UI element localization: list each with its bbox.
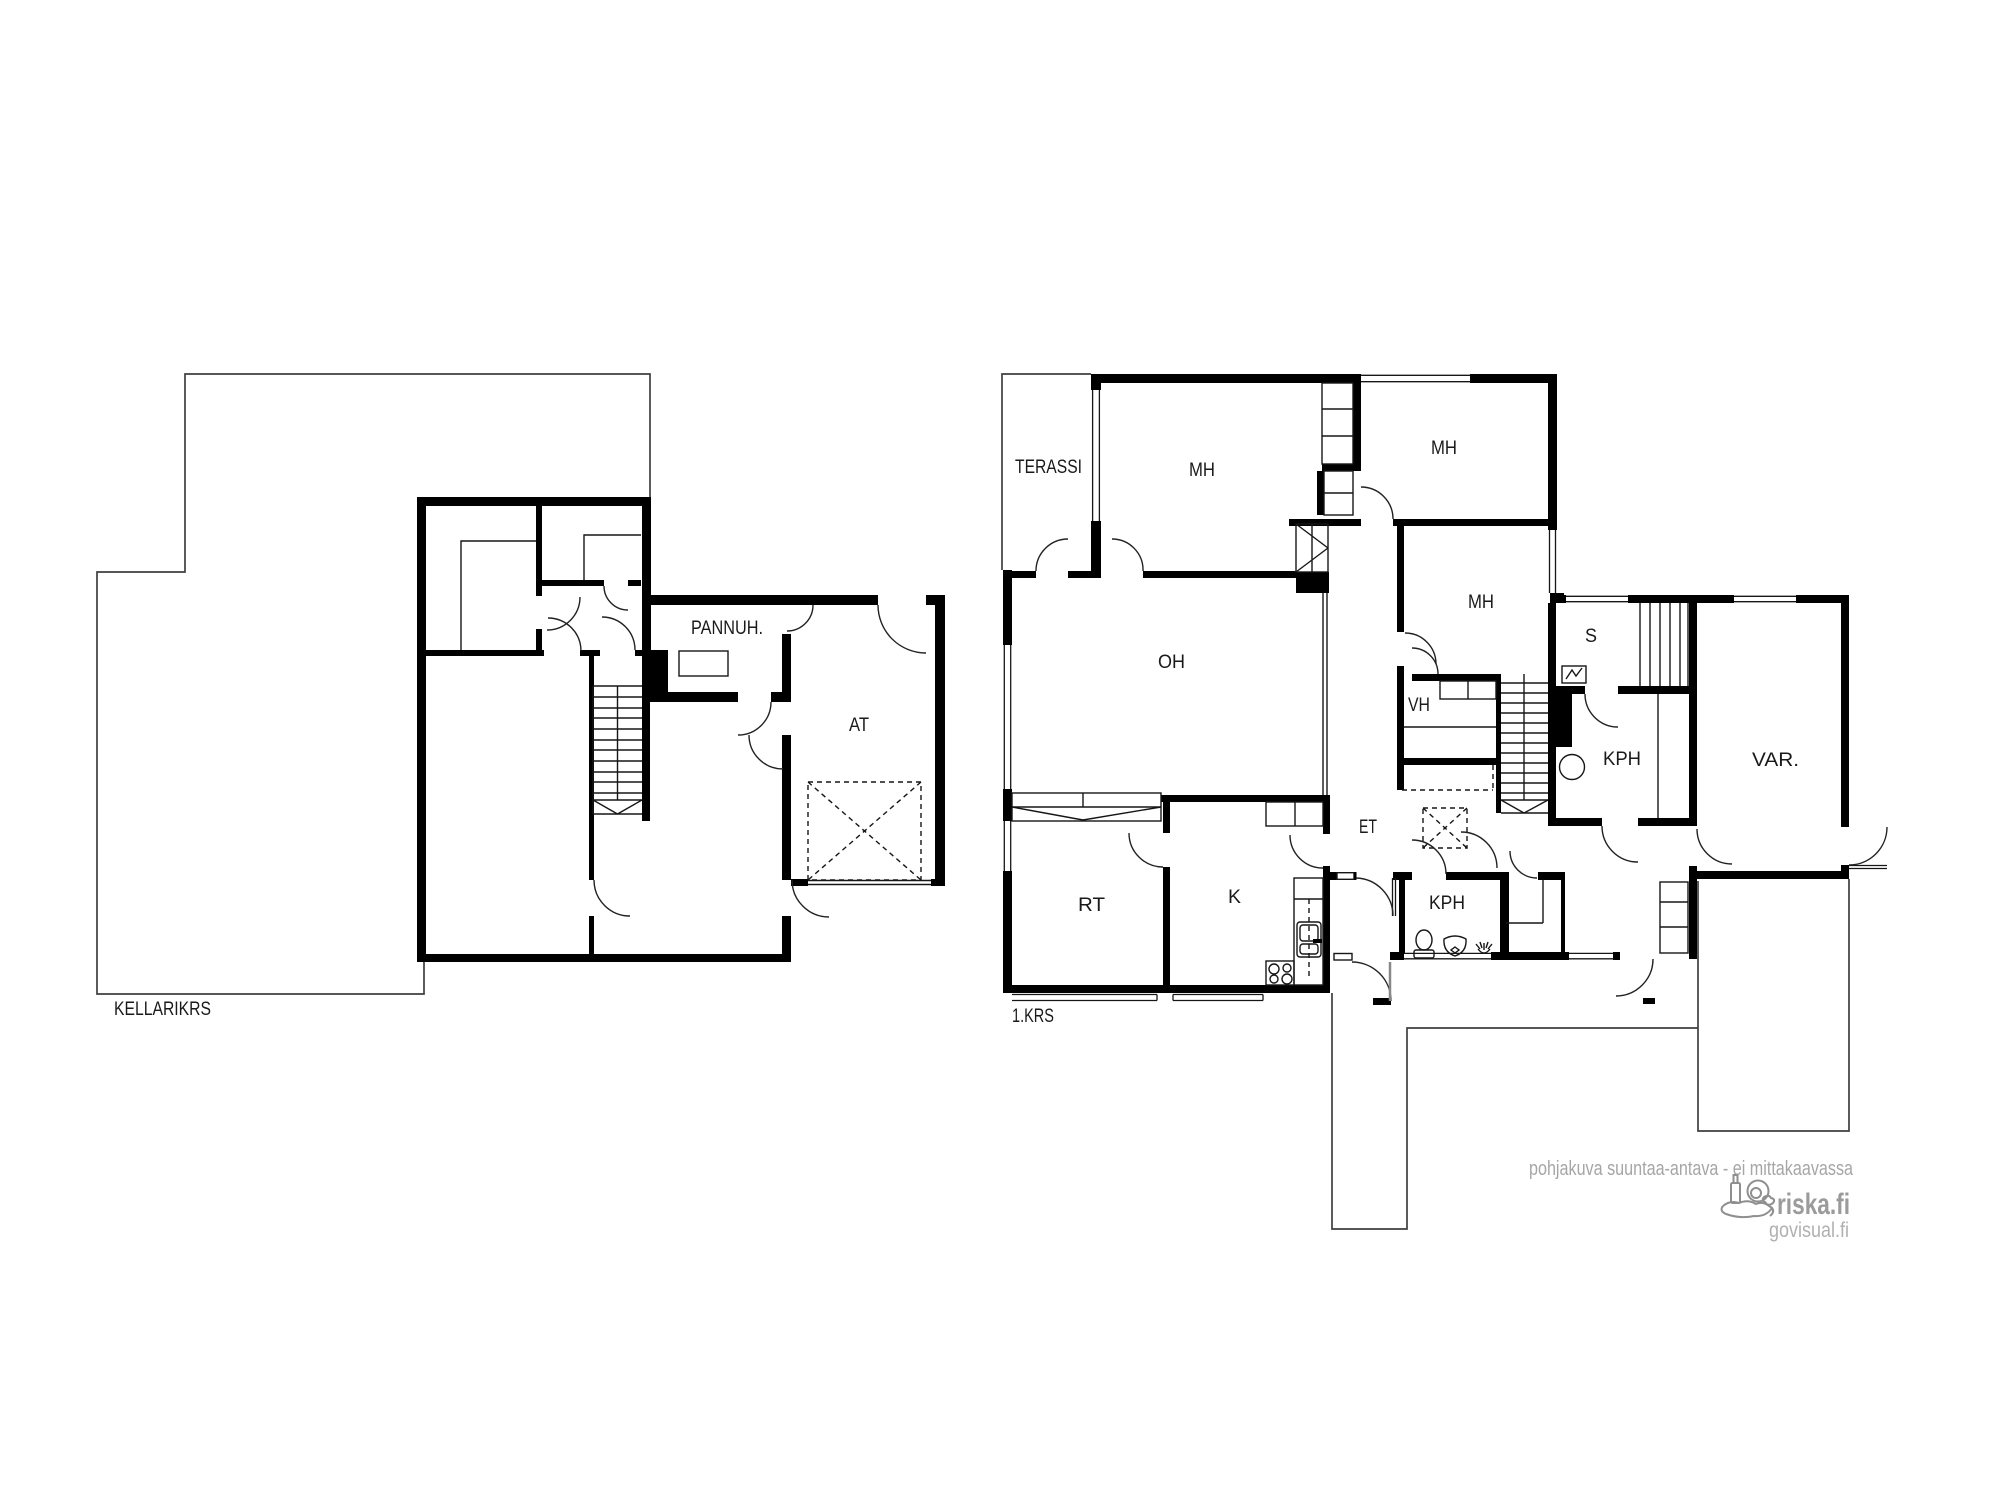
svg-text:TERASSI: TERASSI xyxy=(1015,457,1082,478)
svg-text:1.KRS: 1.KRS xyxy=(1012,1006,1054,1027)
svg-text:K: K xyxy=(1228,887,1241,908)
svg-text:MH: MH xyxy=(1189,460,1215,481)
svg-text:KPH: KPH xyxy=(1429,893,1465,914)
svg-text:PANNUH.: PANNUH. xyxy=(691,618,763,639)
svg-text:RT: RT xyxy=(1078,895,1105,916)
svg-text:OH: OH xyxy=(1158,652,1185,673)
svg-text:KELLARIKRS: KELLARIKRS xyxy=(114,999,211,1020)
svg-text:ET: ET xyxy=(1359,817,1377,838)
svg-text:VAR.: VAR. xyxy=(1752,750,1799,771)
svg-text:MH: MH xyxy=(1468,592,1494,613)
svg-text:KPH: KPH xyxy=(1603,749,1641,770)
svg-text:pohjakuva suuntaa-antava - ei: pohjakuva suuntaa-antava - ei mittakaava… xyxy=(1529,1158,1854,1180)
svg-text:AT: AT xyxy=(849,715,869,736)
svg-text:riska.fi: riska.fi xyxy=(1777,1188,1850,1221)
svg-text:MH: MH xyxy=(1431,438,1457,459)
svg-text:govisual.fi: govisual.fi xyxy=(1769,1219,1849,1242)
svg-text:S: S xyxy=(1585,626,1597,647)
svg-text:VH: VH xyxy=(1408,695,1430,716)
